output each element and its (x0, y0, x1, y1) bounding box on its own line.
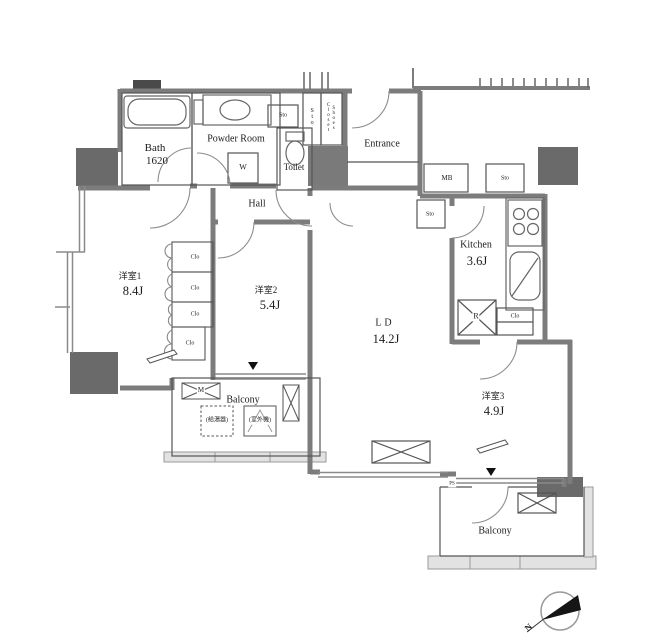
corridor-rail (413, 68, 590, 88)
room-outlines (122, 93, 584, 556)
room-label-hall: Hall (248, 199, 265, 210)
storage-label-toilet: Sto (279, 113, 287, 120)
balcony-right-outline (440, 487, 584, 556)
vanity-counter (194, 95, 271, 125)
vent-ticks (304, 72, 328, 89)
floor-plan: Bath 1620 Powder Room Toilet Hall Entran… (0, 0, 669, 641)
storage-label-kitchen: Sto (426, 212, 434, 219)
balcony-right-door-arc (472, 487, 508, 523)
room-size-bedroom2: 5.4J (260, 299, 281, 313)
slant-marks (147, 350, 508, 453)
room-label-bedroom2: 洋室2 (255, 286, 278, 296)
hall-door-arc (330, 203, 353, 226)
washer-label: W (239, 164, 247, 173)
compass (527, 592, 581, 632)
closet-label-kitchen: Clo (511, 314, 520, 321)
water-heater-label: (給湯器) (205, 418, 229, 425)
room-label-bath: Bath (145, 142, 166, 154)
left-exterior-wall (55, 186, 85, 353)
bedroom1-door-arc (150, 188, 190, 228)
ac-unit-label: (室外機) (248, 418, 272, 425)
room-label-powder-room: Powder Room (207, 134, 265, 145)
storage-label-shoes: Sto (309, 108, 315, 126)
entrance-door-arc (352, 91, 389, 128)
windows (215, 374, 564, 483)
room-size-bedroom3: 4.9J (484, 405, 505, 419)
refrigerator-label: R (472, 313, 479, 322)
shoes-closet-label: Shoes Closet (326, 103, 337, 133)
room-label-bedroom3: 洋室3 (482, 392, 505, 402)
kitchen-counter (506, 198, 544, 310)
room-label-kitchen: Kitchen (460, 240, 492, 251)
room-size-ld: 14.2J (373, 333, 400, 347)
room-label-entrance: Entrance (364, 139, 400, 150)
room-label-ld: LD (375, 318, 394, 329)
bathtub (124, 96, 190, 128)
kitchen-cabinet (497, 308, 533, 335)
balcony-slabs (164, 452, 596, 569)
closet-label-2: Clo (191, 286, 200, 293)
room-label-balcony-right: Balcony (478, 526, 511, 537)
floorplan-drawing (0, 0, 669, 641)
room-label-bedroom1: 洋室1 (119, 272, 142, 282)
bath-room (122, 93, 192, 185)
closet-label-1: Clo (191, 255, 200, 262)
bedroom2-door-arc (218, 222, 254, 258)
closet-label-4: Clo (186, 341, 195, 348)
room-label-balcony-left: Balcony (226, 395, 259, 406)
room-label-toilet: Toilet (284, 163, 305, 173)
meter-box-label: MB (442, 175, 453, 183)
room-size-bath: 1620 (146, 155, 168, 167)
bedroom3-door-arc (480, 342, 517, 379)
meter-label: M (197, 387, 205, 395)
storage-label-top: Sto (501, 176, 509, 183)
ld-hatch-box (372, 441, 430, 463)
toilet-fixture (286, 132, 304, 165)
compass-needle (542, 595, 581, 620)
balcony-left-outline (172, 378, 320, 456)
kitchen-door-arc (452, 206, 484, 238)
room-size-kitchen: 3.6J (467, 255, 488, 269)
room-size-bedroom1: 8.4J (123, 285, 144, 299)
closet-label-3: Clo (191, 312, 200, 319)
toilet-room (277, 128, 312, 190)
powder-door-arc (197, 153, 230, 186)
pipe-space-label: PS (448, 481, 456, 487)
